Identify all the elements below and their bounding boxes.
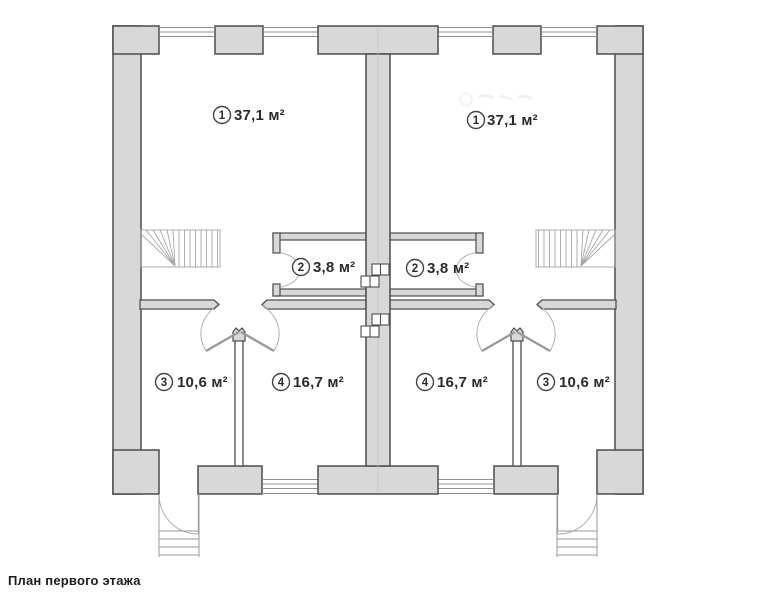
plan-caption: План первого этажа [8,573,141,588]
svg-text:37,1 м²: 37,1 м² [234,107,285,124]
svg-text:16,7 м²: 16,7 м² [293,374,344,391]
svg-text:3: 3 [543,377,549,389]
room-label-right-2: 2 3,8 м² [407,260,470,278]
floor-plan-svg: 1 37,1 м² 2 3,8 м² 3 10,6 м² 4 16,7 м² 1 [0,0,762,600]
svg-text:2: 2 [412,263,418,275]
room-label-left-2: 2 3,8 м² [293,259,356,277]
svg-text:10,6 м²: 10,6 м² [559,374,610,391]
room-label-right-3: 3 10,6 м² [538,374,610,392]
ghost-watermark [460,93,532,105]
svg-text:4: 4 [278,377,285,389]
svg-text:2: 2 [298,262,304,274]
room-label-left-4: 4 16,7 м² [273,374,344,392]
room-label-right-1: 1 37,1 м² [468,112,538,130]
svg-text:37,1 м²: 37,1 м² [487,112,538,129]
svg-text:3,8 м²: 3,8 м² [427,260,469,277]
svg-text:1: 1 [219,110,226,122]
svg-text:3: 3 [161,377,167,389]
floor-plan-canvas: 1 37,1 м² 2 3,8 м² 3 10,6 м² 4 16,7 м² 1 [0,0,762,600]
room-label-left-3: 3 10,6 м² [156,374,228,392]
svg-text:16,7 м²: 16,7 м² [437,374,488,391]
room-label-left-1: 1 37,1 м² [214,107,285,125]
svg-text:4: 4 [422,377,429,389]
svg-text:1: 1 [473,115,480,127]
room-label-right-4: 4 16,7 м² [417,374,488,392]
svg-text:3,8 м²: 3,8 м² [313,259,355,276]
svg-text:10,6 м²: 10,6 м² [177,374,228,391]
